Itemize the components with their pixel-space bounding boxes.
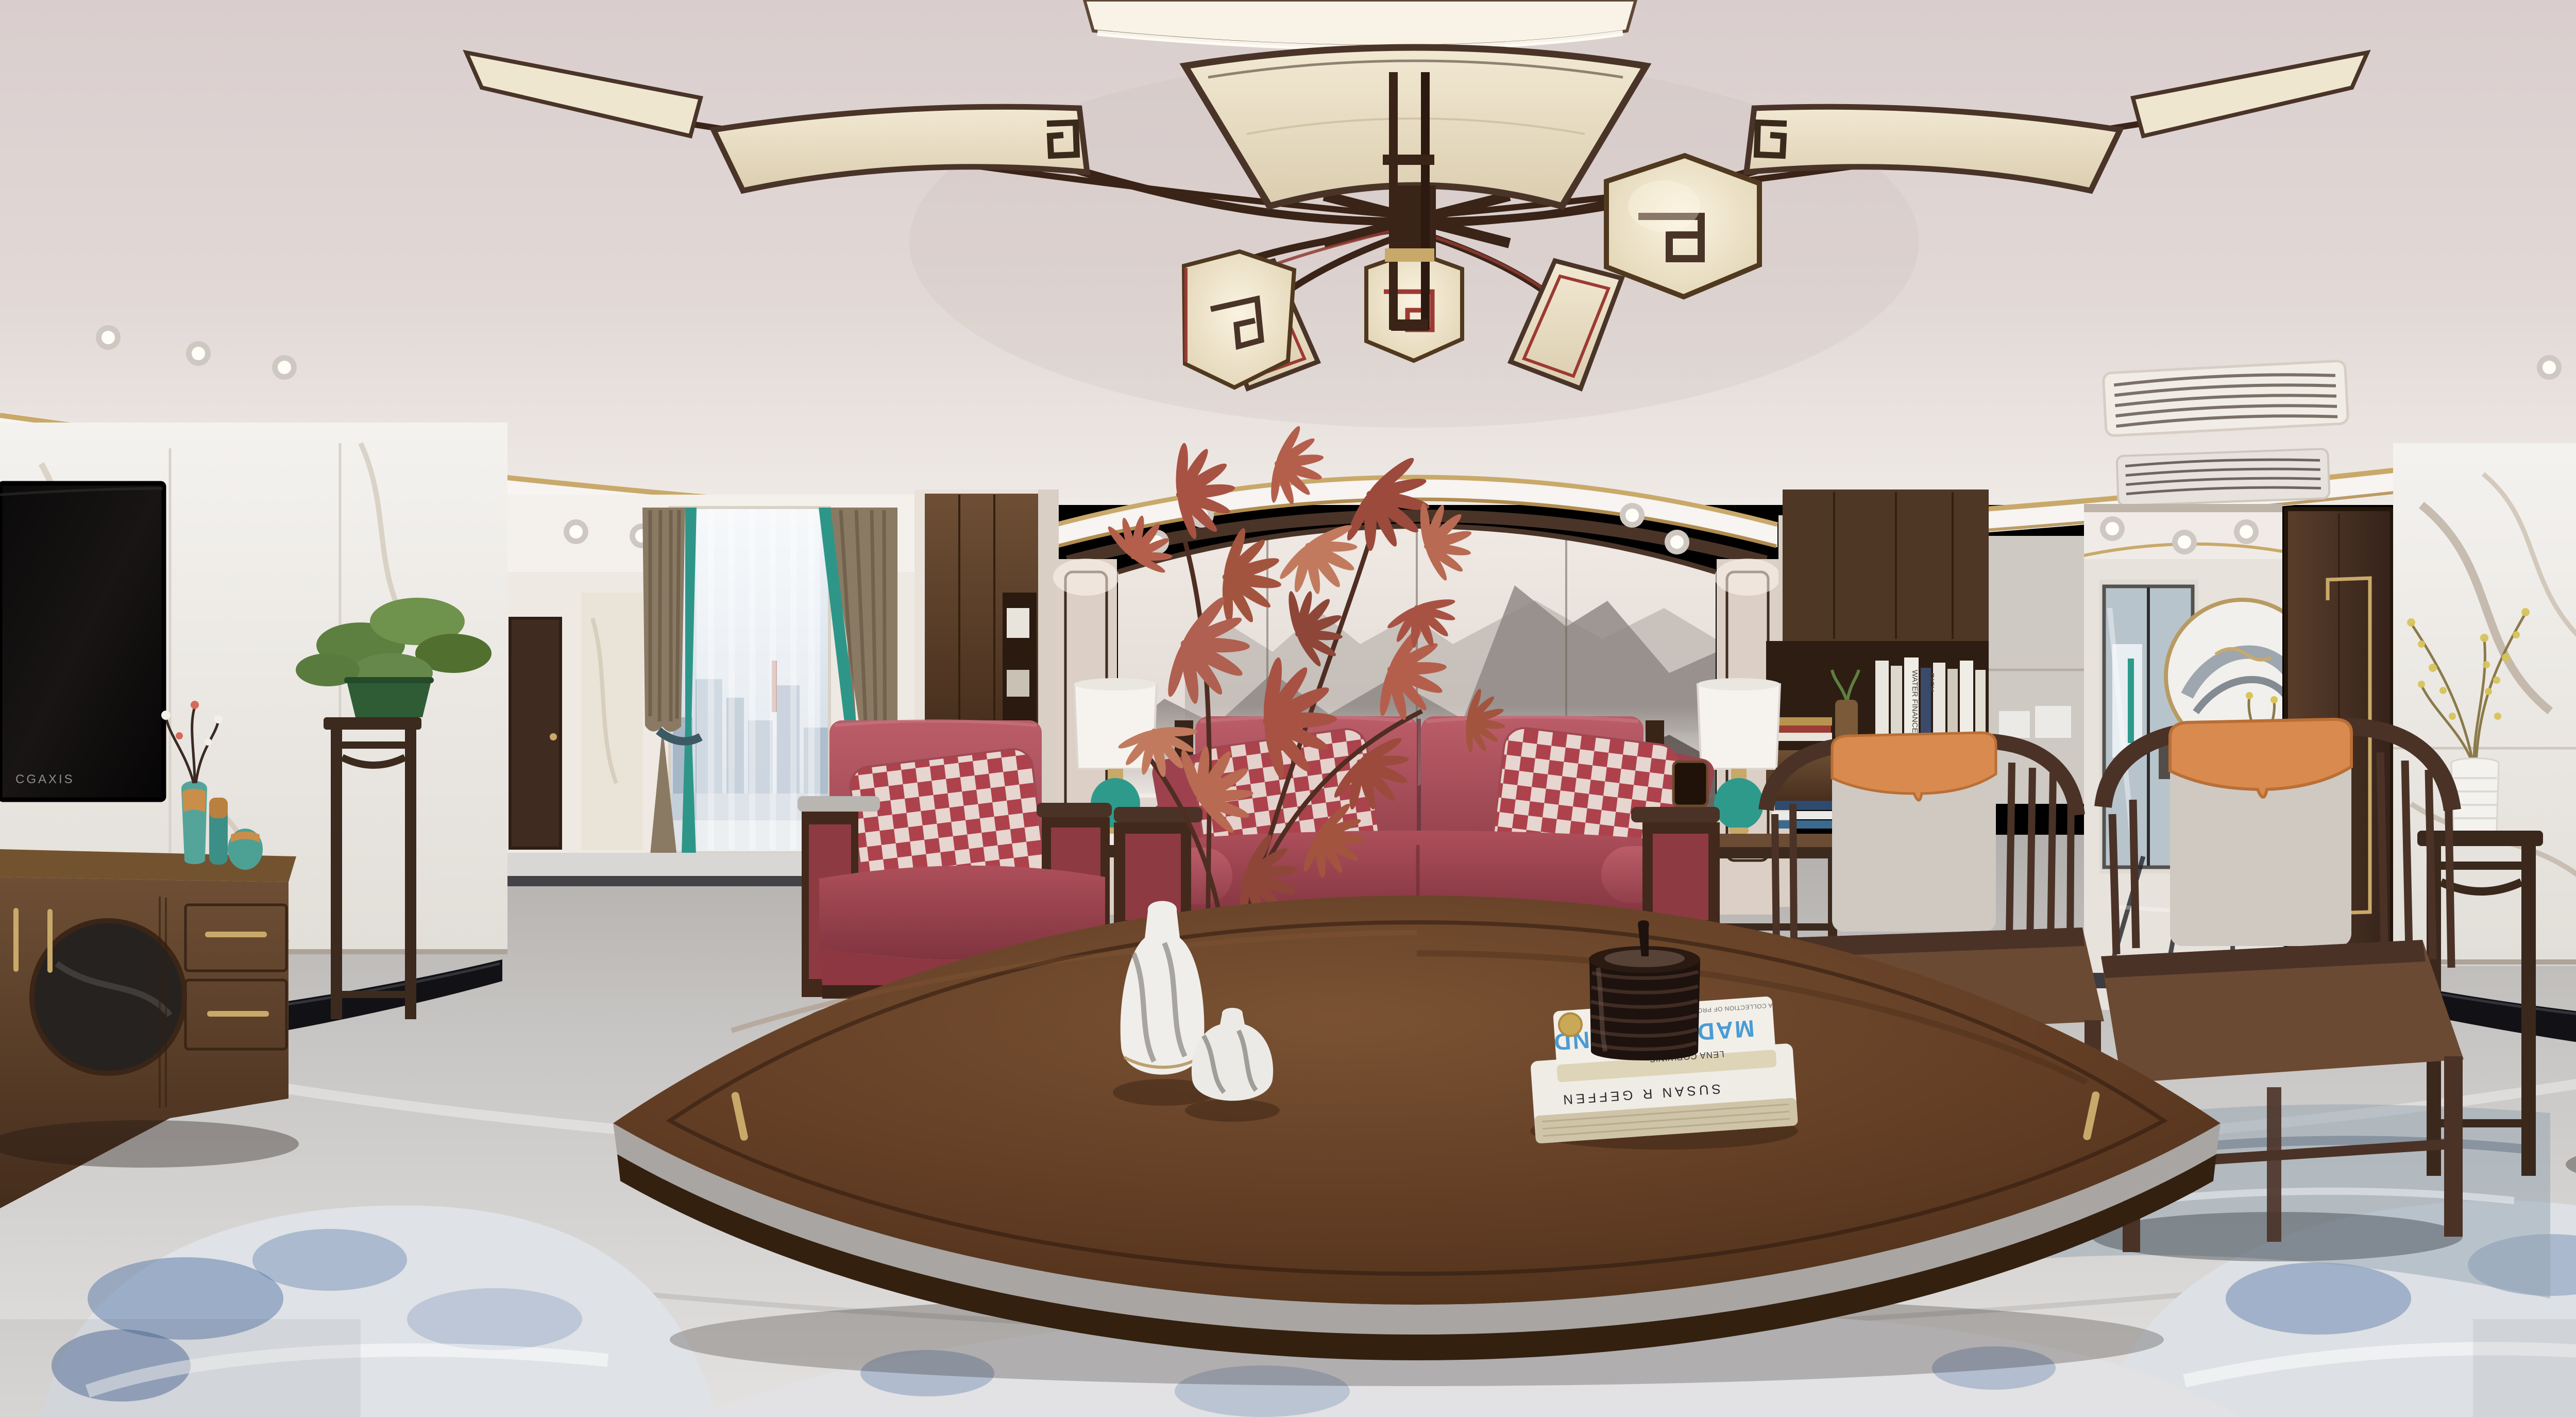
vignette xyxy=(2473,1319,2576,1417)
fabric-lantern-center xyxy=(1366,251,1462,361)
bonsai-pot xyxy=(346,679,432,717)
spotlight xyxy=(2234,519,2259,544)
spotlight xyxy=(1620,503,1645,528)
spotlight xyxy=(96,325,121,350)
spotlight xyxy=(186,341,211,366)
spotlight xyxy=(2537,355,2562,380)
fabric-lantern-left xyxy=(1184,251,1294,387)
spotlight xyxy=(1665,530,1689,554)
brass-handle xyxy=(207,1011,269,1017)
chair-cushion xyxy=(1832,733,1996,932)
wall-tv-left: CGAXIS xyxy=(0,483,164,800)
vignette xyxy=(0,1319,361,1417)
tv-cabinet-left xyxy=(0,849,299,1208)
post-gold-sleeve xyxy=(1385,248,1434,262)
sofa-back-rail-cutout xyxy=(1673,762,1707,806)
stone-pillar xyxy=(581,593,643,850)
cabinet-round-stone-inset xyxy=(32,921,184,1073)
sofa-armrest-right xyxy=(1631,807,1720,822)
book-gold-seal xyxy=(1558,1013,1582,1037)
book-spine-label: DICH xyxy=(1927,673,1936,692)
spotlight xyxy=(272,355,297,380)
chair-cushion xyxy=(2170,719,2351,946)
tv-brand-label: CGAXIS xyxy=(15,772,75,786)
panorama-photo: CGAXIS xyxy=(0,0,2576,1417)
hallway-door xyxy=(510,618,561,848)
brass-handle xyxy=(205,932,267,937)
spotlight xyxy=(2172,530,2197,554)
spotlight xyxy=(564,519,588,544)
spotlight xyxy=(2100,516,2125,541)
fabric-lantern-right xyxy=(1606,156,1759,297)
